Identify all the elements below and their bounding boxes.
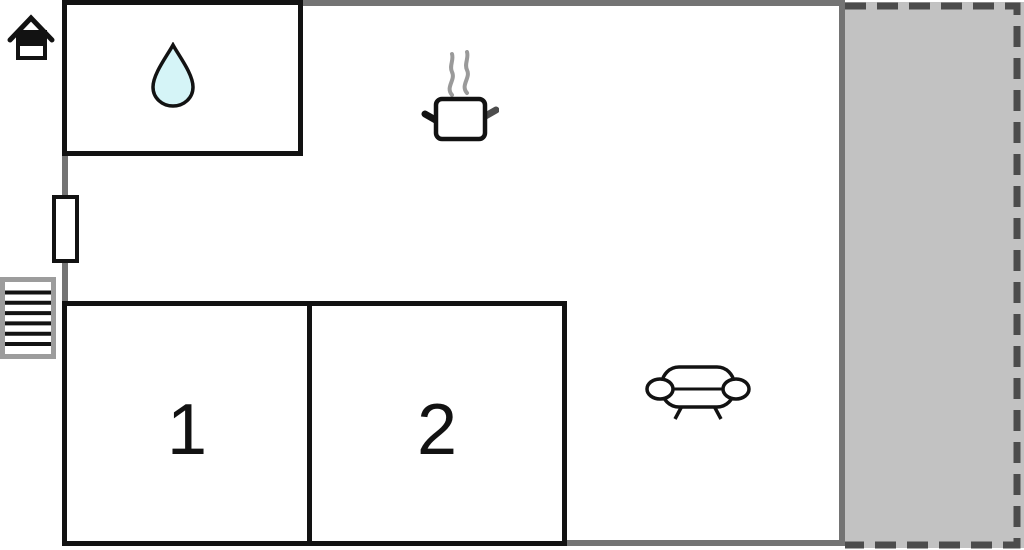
- cooking-pot-icon: [421, 50, 499, 142]
- terrace-area: [845, 2, 1024, 548]
- sofa-icon: [645, 362, 751, 422]
- bedroom-2-label: 2: [417, 382, 457, 466]
- room-bedroom-2: 2: [312, 301, 567, 546]
- floorplan: 1 2: [0, 0, 1024, 550]
- house-icon: [7, 13, 55, 63]
- bedroom-1-label: 1: [167, 382, 207, 466]
- room-bedroom-1: 1: [62, 301, 312, 546]
- water-drop-icon: [148, 42, 198, 110]
- door-icon: [52, 195, 79, 263]
- stairs-icon: [0, 277, 56, 359]
